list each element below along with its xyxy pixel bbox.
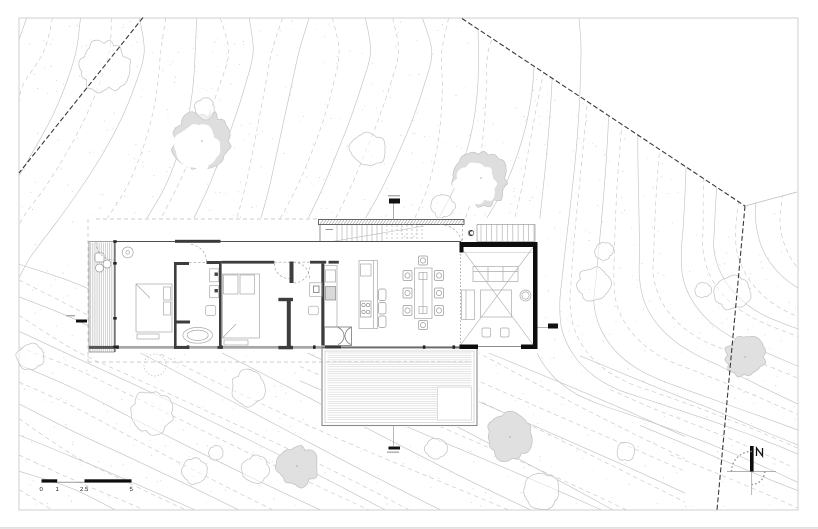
svg-text:0: 0 (40, 486, 44, 493)
svg-text:2.5: 2.5 (80, 486, 89, 493)
svg-text:1: 1 (56, 486, 60, 493)
svg-text:5: 5 (130, 486, 134, 493)
